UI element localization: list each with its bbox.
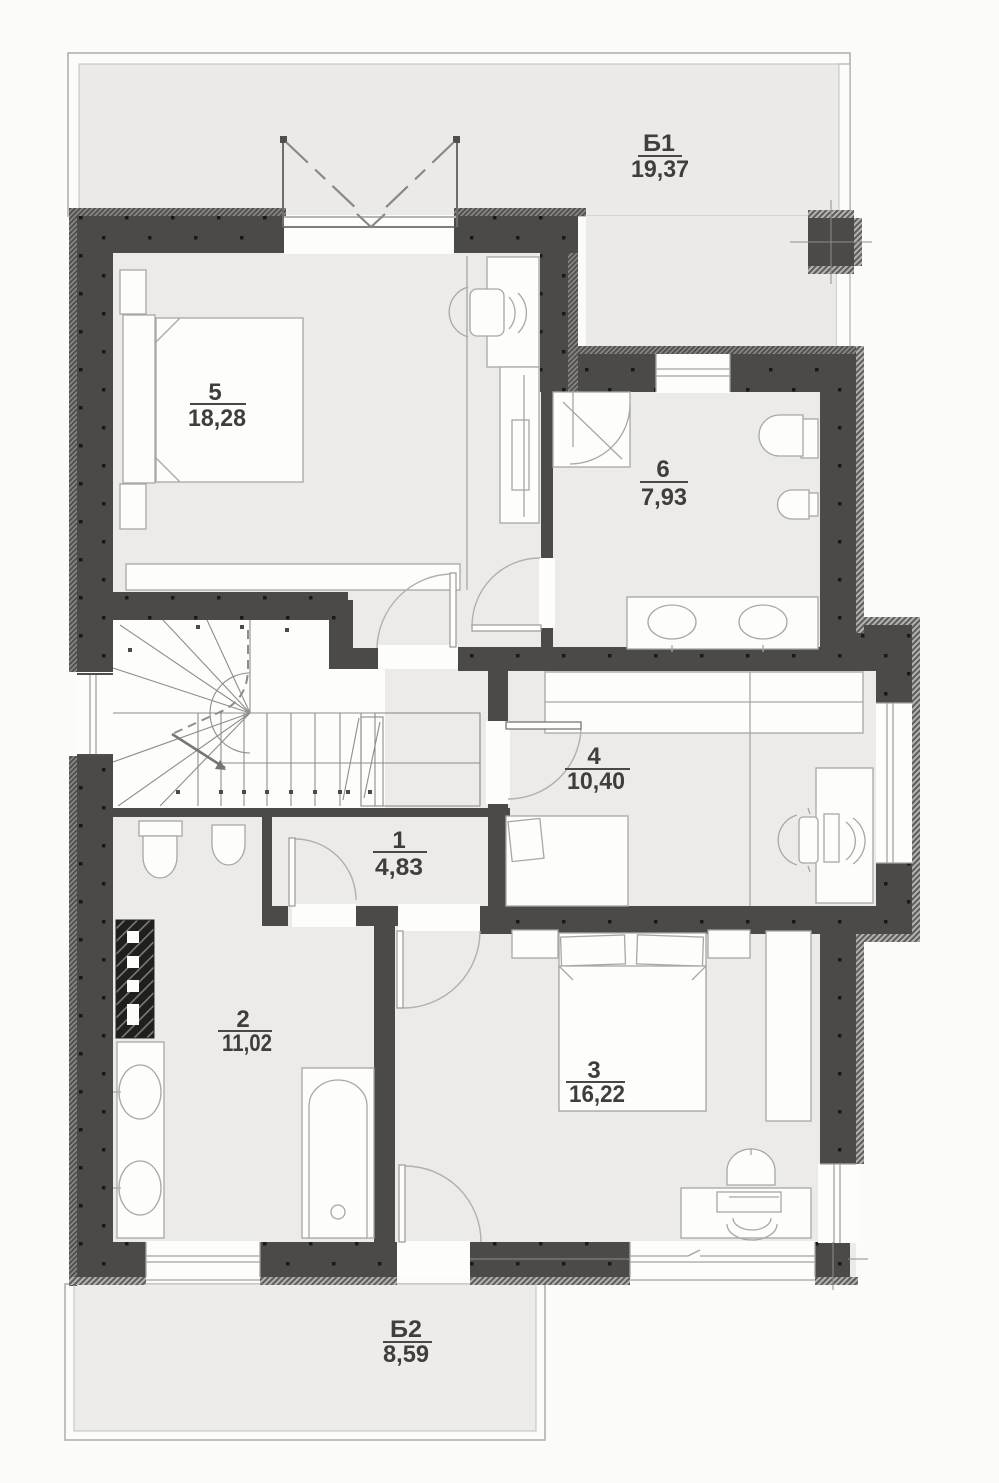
svg-text:3: 3 — [587, 1057, 600, 1084]
svg-text:19,37: 19,37 — [631, 156, 689, 183]
svg-text:18,28: 18,28 — [188, 405, 246, 432]
svg-text:11,02: 11,02 — [222, 1030, 272, 1057]
svg-text:10,40: 10,40 — [567, 768, 625, 795]
svg-text:4: 4 — [587, 743, 601, 770]
svg-text:2: 2 — [236, 1006, 249, 1033]
svg-text:4,83: 4,83 — [375, 854, 423, 881]
svg-text:1: 1 — [392, 827, 405, 854]
svg-text:7,93: 7,93 — [641, 484, 687, 511]
svg-text:5: 5 — [208, 379, 221, 406]
svg-text:8,59: 8,59 — [383, 1341, 429, 1368]
svg-text:Б2: Б2 — [390, 1316, 422, 1343]
svg-text:16,22: 16,22 — [569, 1081, 625, 1108]
svg-text:Б1: Б1 — [643, 130, 675, 157]
svg-text:6: 6 — [656, 456, 669, 483]
